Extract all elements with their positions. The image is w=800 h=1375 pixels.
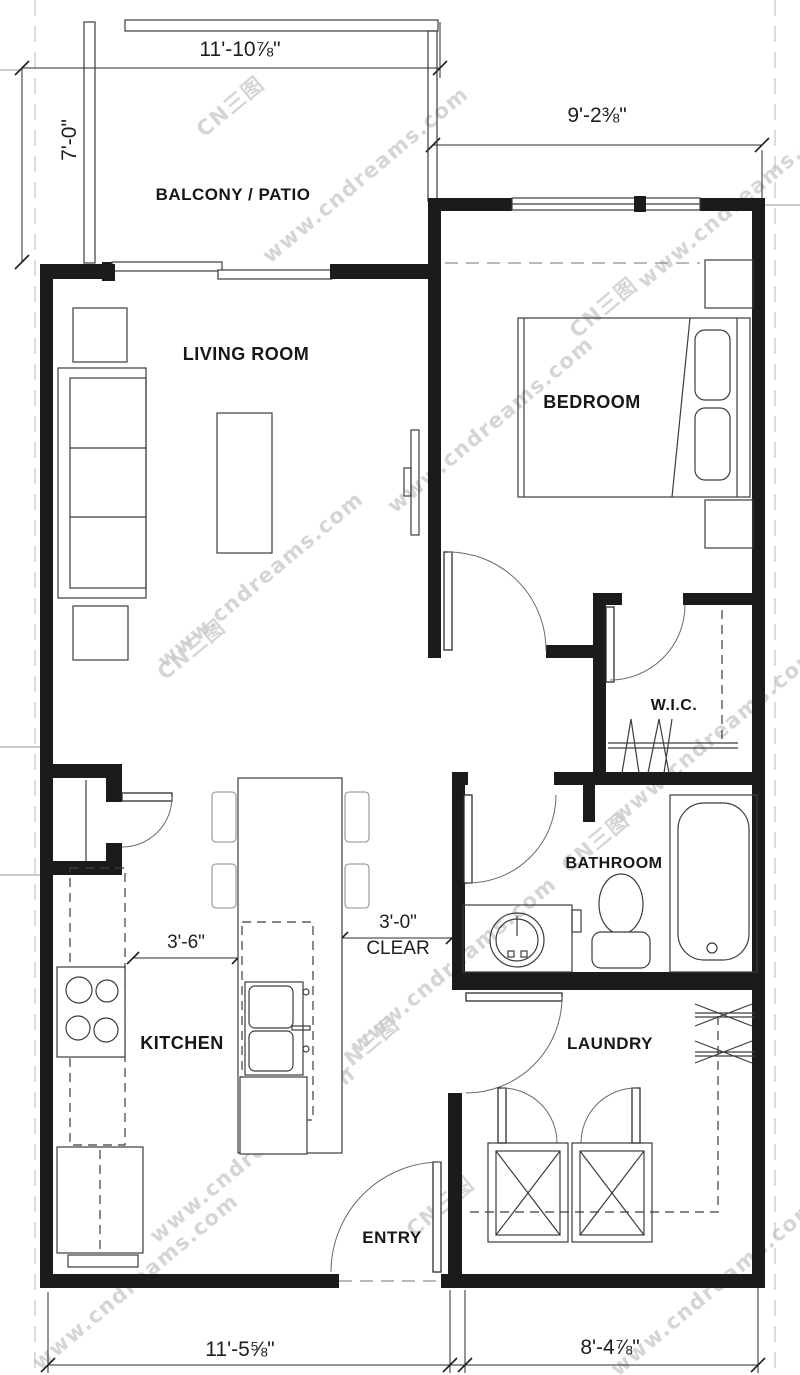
floor-plan-drawing: www.cndreams.com CN三图 www.cndreams.com C… <box>0 0 800 1375</box>
end-table <box>73 606 128 660</box>
floor-plan-page: www.cndreams.com CN三图 www.cndreams.com C… <box>0 0 800 1375</box>
bar-chair <box>345 792 369 842</box>
watermark-text: CN三图 <box>565 272 642 342</box>
room-label-balcony: BALCONY / PATIO <box>156 185 311 204</box>
toilet-tank <box>592 932 650 968</box>
closet-door-leaf <box>498 1088 506 1143</box>
dim-text-bedroom-width: 9'-2⅜" <box>567 104 626 127</box>
wic-door <box>606 605 685 682</box>
pantry-door-swing <box>122 797 172 847</box>
sink-handle <box>508 951 514 957</box>
dim-text-kitchen-aisle: 3'-6" <box>167 932 205 953</box>
wic-door-swing <box>610 605 685 680</box>
bar-chair <box>212 864 236 908</box>
watermark-text: www.cndreams.com <box>383 332 598 518</box>
bathtub <box>670 795 757 972</box>
pillow <box>695 408 730 480</box>
nightstand <box>705 500 753 548</box>
wall-pantry-east-a <box>106 778 122 802</box>
bedroom-door <box>444 552 546 650</box>
bathroom-door-swing <box>468 795 556 883</box>
dryer-x <box>580 1151 644 1235</box>
room-labels: BALCONY / PATIO LIVING ROOM BEDROOM W.I.… <box>140 185 697 1247</box>
wall-south-left <box>40 1274 339 1288</box>
window-mullion <box>634 196 646 212</box>
wall-living-north-a <box>40 264 115 279</box>
dim-text-overall-right: 8'-4⅞" <box>580 1336 639 1359</box>
entry-door-leaf <box>433 1162 441 1272</box>
dim-text-balcony-width: 11'-10⅞" <box>199 38 280 61</box>
refrigerator-base <box>68 1255 138 1267</box>
wall-east <box>752 198 765 1288</box>
washer-x <box>496 1151 560 1235</box>
bedroom-door-leaf <box>444 552 452 650</box>
balcony-railing-top <box>125 20 438 31</box>
dim-text-hall-clear: 3'-0" <box>379 912 417 933</box>
wall-bath-south <box>452 972 757 990</box>
bedroom-window <box>512 196 700 212</box>
laundry-door-swing <box>466 997 562 1093</box>
wall-laundry-west <box>448 1093 462 1276</box>
wall-living-north-b <box>330 264 441 279</box>
bathtub-basin <box>678 803 749 960</box>
sofa <box>58 368 146 598</box>
bedroom-door-swing <box>448 552 546 650</box>
wall-wic-north-b <box>683 593 757 605</box>
room-label-wic: W.I.C. <box>651 697 698 714</box>
dim-text-balcony-depth: 7'-0" <box>58 119 81 161</box>
wall-bedroom-north-a <box>428 198 512 211</box>
soap-dish <box>572 910 581 932</box>
wall-wic-north-a <box>593 593 622 605</box>
wic-door-leaf <box>606 607 614 682</box>
watermark-text: CN三图 <box>192 71 269 141</box>
pantry-door <box>122 793 172 847</box>
stove <box>57 967 125 1057</box>
wall-bedroom-west <box>428 211 441 658</box>
room-label-bathroom: BATHROOM <box>565 855 662 872</box>
wall-wic-west <box>593 593 606 785</box>
bathtub-drain <box>707 943 717 953</box>
wall-bedroom-north-b <box>700 198 765 211</box>
bathroom-door <box>464 795 556 883</box>
room-label-kitchen: KITCHEN <box>140 1033 224 1053</box>
dim-text-hall-clear-word: CLEAR <box>366 938 429 959</box>
bar-chair <box>212 792 236 842</box>
closet-door-leaf <box>632 1088 640 1143</box>
toilet-bowl <box>599 874 643 934</box>
nightstand <box>705 260 753 308</box>
bathroom-door-leaf <box>464 795 472 883</box>
wall-bath-stub <box>583 785 595 822</box>
wall-bath-north-b <box>554 772 757 785</box>
pantry-door-leaf <box>122 793 172 801</box>
room-label-bedroom: BEDROOM <box>543 392 641 412</box>
dishwasher <box>240 1077 307 1154</box>
wic-fittings <box>608 610 738 773</box>
laundry-door <box>466 993 562 1093</box>
sink-handle <box>521 951 527 957</box>
watermark-text: www.cndreams.com <box>608 642 800 828</box>
closet-door-swing <box>502 1088 557 1143</box>
sofa-seat <box>70 378 146 588</box>
room-label-entry: ENTRY <box>362 1228 422 1247</box>
pillow <box>695 330 730 400</box>
wall-pantry-north <box>48 764 122 778</box>
sliding-door-panel <box>112 262 222 271</box>
end-table <box>73 308 127 362</box>
bar-chair <box>345 864 369 908</box>
coffee-table <box>217 413 272 553</box>
wall-south-right <box>441 1274 765 1288</box>
closet-door-swing <box>581 1088 636 1143</box>
balcony-railing-left <box>84 22 95 263</box>
room-label-living: LIVING ROOM <box>183 344 310 364</box>
dim-text-overall-left: 11'-5⅝" <box>205 1338 274 1361</box>
room-label-laundry: LAUNDRY <box>567 1034 653 1053</box>
laundry-door-leaf <box>466 993 562 1001</box>
bed-fold-line <box>672 318 690 497</box>
sliding-door-panel <box>218 270 332 279</box>
laundry-closet-doors <box>498 1088 640 1143</box>
